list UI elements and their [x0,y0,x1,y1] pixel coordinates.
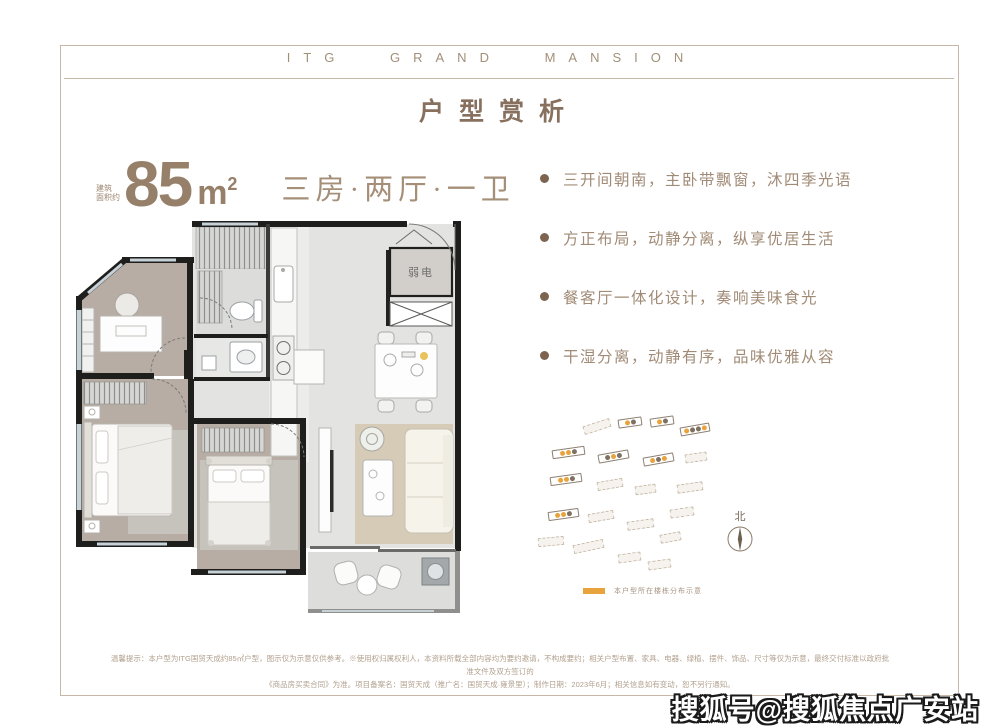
siteplan-building [548,508,580,521]
shoe-cabinet [390,302,452,326]
legend-text: 本户型所在楼栋分布示意 [614,586,702,596]
highlight-dot [563,477,569,483]
bullet-icon [540,233,549,242]
watermark: 搜狐号@搜狐焦点广安站 [672,688,979,727]
siteplan-building [596,478,623,491]
feature-item: 三开间朝南，主卧带飘窗，沐四季光语 [540,168,960,190]
area-note-line1: 建筑 [96,184,120,193]
north-label: 北 [726,508,754,524]
dark-dot [567,511,573,517]
siteplan-building [684,452,707,464]
siteplan-building [647,558,671,570]
feature-list: 三开间朝南，主卧带飘窗，沐四季光语 方正布局，动静分离，纵享优居生活 餐客厅一体… [540,168,960,404]
siteplan-building [550,473,583,486]
feature-item: 方正布局，动静分离，纵享优居生活 [540,227,960,249]
feature-text: 方正布局，动静分离，纵享优居生活 [563,231,835,248]
highlight-dot [701,425,707,431]
siteplan-building [538,536,565,547]
dark-dot [569,476,575,482]
feature-text: 餐客厅一体化设计，奏响美味食光 [563,290,818,307]
disclaimer: 温馨提示：本户型为ITG国贸天成约85㎡户型，图示仅为示意仅供参考。※使用权归属… [110,652,890,691]
compass-icon [726,524,754,554]
site-plan: 北 [523,398,778,578]
dark-dot [656,457,662,463]
header-divider [64,78,954,79]
room-configuration: 三房·两厅·一卫 [281,172,514,208]
siteplan-building [552,446,586,460]
feature-item: 餐客厅一体化设计，奏响美味食光 [540,286,960,308]
siteplan-building [582,418,611,435]
siteplan-building [597,449,629,463]
highlight-dot [662,456,668,462]
feature-text: 三开间朝南，主卧带飘窗，沐四季光语 [563,172,852,189]
highlight-dot [557,478,563,484]
siteplan-legend: 本户型所在楼栋分布示意 [583,586,702,596]
siteplan-building [634,484,656,496]
page-title: 户型赏析 [0,92,983,128]
dark-dot [617,453,623,459]
feature-text: 干湿分离，动静有序，品味优雅从容 [563,349,835,366]
siteplan-building [679,422,710,436]
highlight-dot [555,513,561,519]
highlight-dot [656,419,662,425]
siteplan-building [642,452,674,466]
dark-dot [662,418,668,424]
siteplan-building [669,506,694,518]
highlight-dot [624,420,630,426]
bullet-icon [540,351,549,360]
siteplan-building [659,531,681,544]
highlight-dot [683,428,689,434]
brand-wordmark: ITG GRAND MANSION [0,50,983,65]
dark-dot [689,427,695,433]
siteplan-building [649,415,674,427]
area-note: 建筑 面积约 [96,184,120,202]
siteplan-building [677,481,704,494]
area-unit: m2 [197,167,237,210]
highlight-dot [561,512,567,518]
siteplan-building [587,510,614,523]
highlight-dot [650,458,656,464]
legend-swatch [583,588,605,594]
dark-dot [605,455,611,461]
compass: 北 [726,508,754,559]
feature-item: 干湿分离，动静有序，品味优雅从容 [540,345,960,367]
unit-headline: 建筑 面积约 85 m2 三房·两厅·一卫 [96,146,515,210]
area-note-line2: 面积约 [96,193,120,202]
bullet-icon [540,292,549,301]
siteplan-building [617,416,642,428]
highlight-dot [566,450,572,456]
siteplan-building [627,518,655,531]
highlight-dot [611,454,617,460]
siteplan-building [572,539,604,554]
dark-dot [572,449,578,455]
bullet-icon [540,174,549,183]
weak-power-label: 弱电 [408,266,434,279]
floor-plan: 弱电 [72,210,472,616]
siteplan-building [617,551,641,563]
dark-dot [695,426,701,432]
dark-dot [630,419,636,425]
area-value: 85 [124,158,191,210]
disclaimer-line1: 温馨提示：本户型为ITG国贸天成约85㎡户型，图示仅为示意仅供参考。※使用权归属… [110,652,890,678]
area-exponent: 2 [227,174,237,194]
highlight-dot [560,451,566,457]
